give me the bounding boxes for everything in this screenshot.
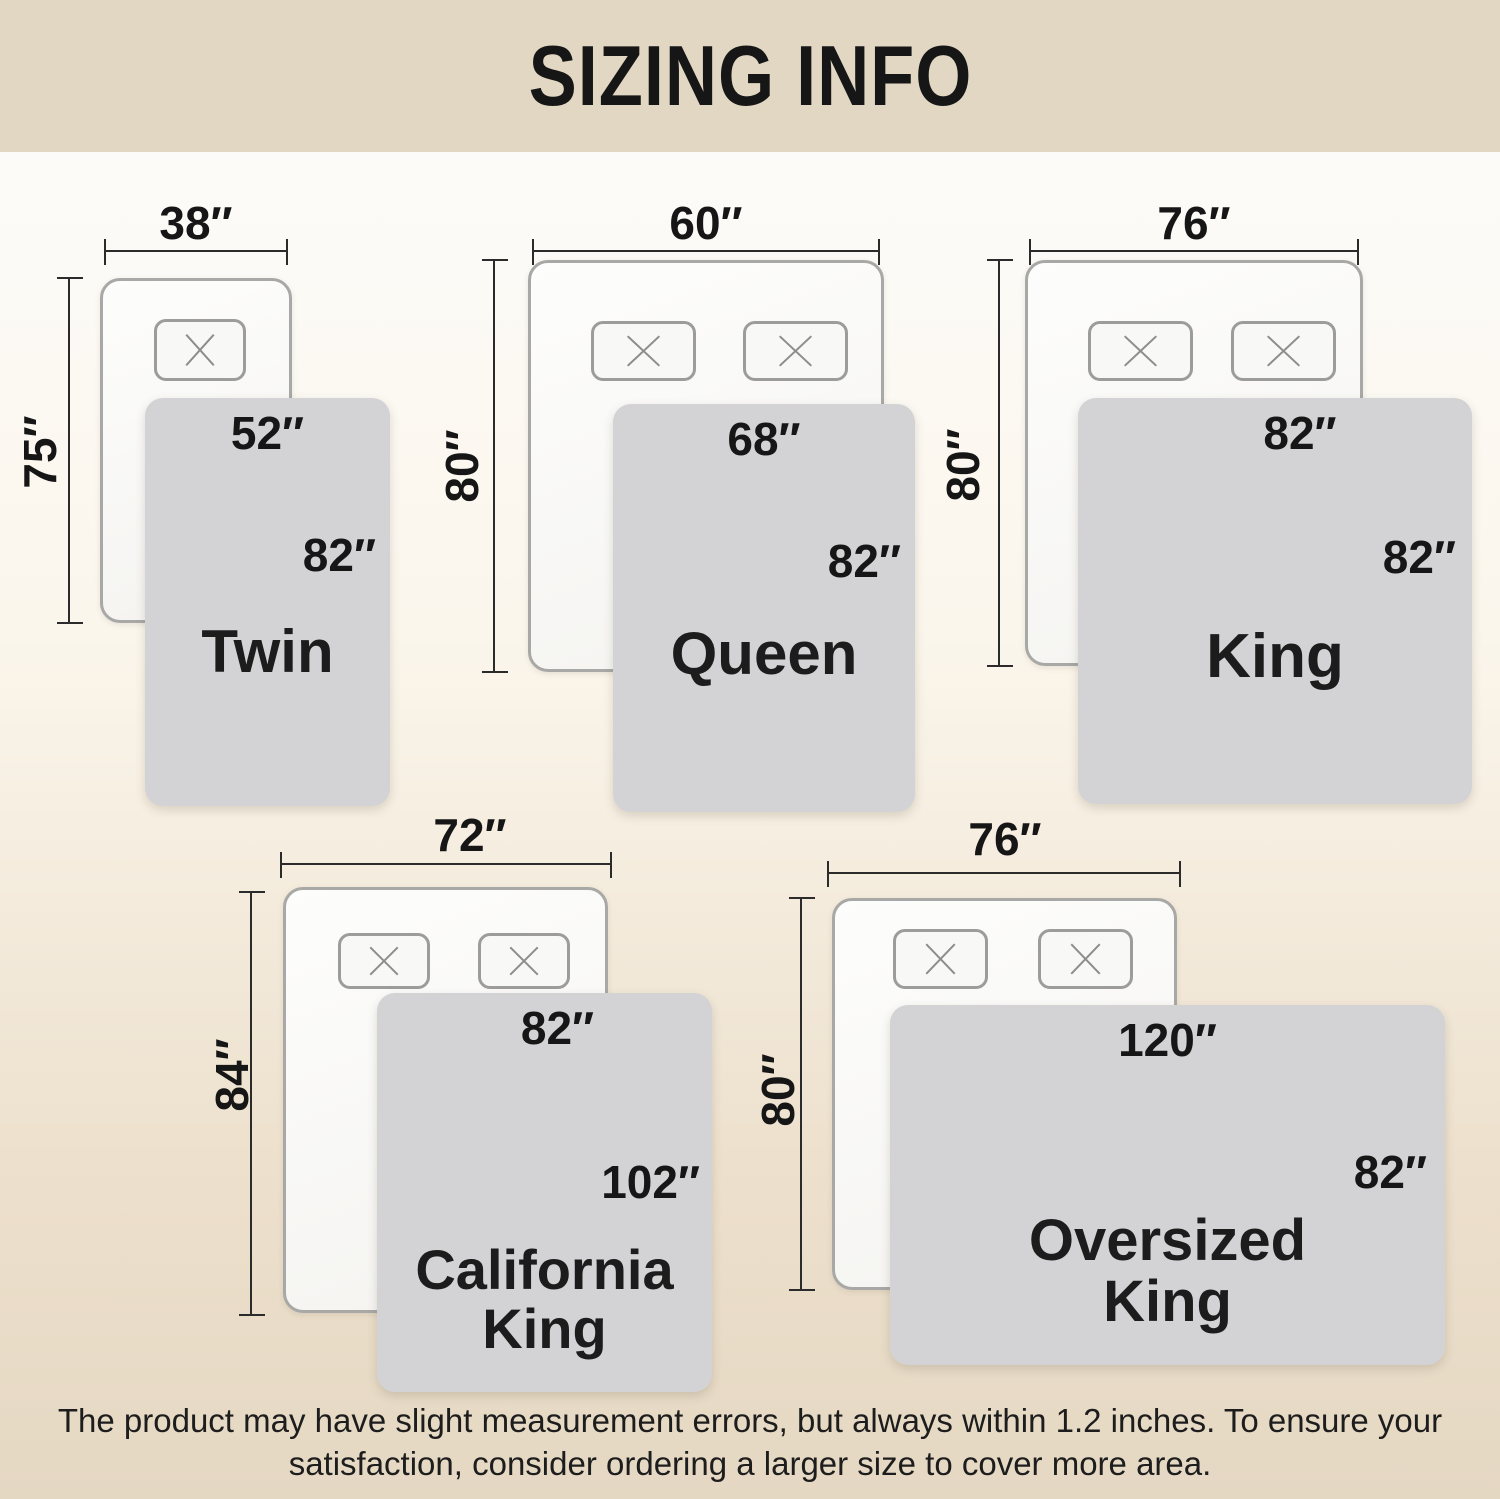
pillow-x-icon bbox=[481, 936, 567, 986]
pillow-x-icon bbox=[746, 324, 845, 378]
mattress-width-label: 72″ bbox=[410, 808, 530, 862]
mattress-width-label: 76″ bbox=[945, 812, 1065, 866]
length-dimension-line bbox=[68, 278, 70, 623]
mattress-width-label: 76″ bbox=[1134, 196, 1254, 250]
length-dimension-line bbox=[250, 892, 252, 1315]
blanket: 82″ 102″ California King bbox=[377, 993, 712, 1392]
mattress-width-label: 38″ bbox=[136, 196, 256, 250]
blanket: 82″ 82″ King bbox=[1078, 398, 1472, 804]
pillow-x-icon bbox=[157, 322, 243, 378]
blanket-width-label: 52″ bbox=[145, 406, 390, 460]
width-dimension-line bbox=[533, 250, 879, 252]
width-dimension-line bbox=[281, 863, 611, 865]
blanket-length-label: 82″ bbox=[828, 534, 901, 588]
sizing-info-page: SIZING INFO 38″ 75″ 52″ 82″ Twin 60″ 80″ bbox=[0, 0, 1500, 1499]
diagram-california-king: 72″ 84″ 82″ 102″ California King bbox=[200, 800, 760, 1444]
size-name-label: Oversized King bbox=[890, 1211, 1445, 1333]
pillow bbox=[338, 933, 430, 989]
page-title: SIZING INFO bbox=[528, 27, 972, 124]
pillow bbox=[1088, 321, 1193, 381]
pillow bbox=[893, 929, 988, 989]
pillow bbox=[1231, 321, 1336, 381]
blanket: 120″ 82″ Oversized King bbox=[890, 1005, 1445, 1365]
blanket-length-label: 82″ bbox=[1354, 1145, 1427, 1199]
blanket-width-label: 68″ bbox=[613, 412, 915, 466]
blanket-width-label: 82″ bbox=[377, 1001, 712, 1055]
blanket-length-label: 82″ bbox=[1383, 530, 1456, 584]
width-dimension-line bbox=[1030, 250, 1358, 252]
diagram-twin: 38″ 75″ 52″ 82″ Twin bbox=[20, 196, 420, 826]
blanket-width-label: 120″ bbox=[890, 1013, 1445, 1067]
pillow-x-icon bbox=[896, 932, 985, 986]
pillow-x-icon bbox=[1041, 932, 1130, 986]
footer-note: The product may have slight measurement … bbox=[50, 1400, 1450, 1486]
width-dimension-line bbox=[105, 250, 287, 252]
diagram-queen: 60″ 80″ 68″ 82″ Queen bbox=[430, 196, 940, 826]
size-name-label: Twin bbox=[145, 620, 390, 683]
diagram-king: 76″ 80″ 82″ 82″ King bbox=[940, 196, 1500, 826]
size-name-label: Queen bbox=[613, 622, 915, 685]
size-name-label: California King bbox=[377, 1241, 712, 1359]
pillow-x-icon bbox=[1234, 324, 1333, 378]
pillow-x-icon bbox=[1091, 324, 1190, 378]
pillow-x-icon bbox=[594, 324, 693, 378]
mattress-length-label: 84″ bbox=[210, 1030, 254, 1120]
length-dimension-line bbox=[998, 260, 1000, 666]
blanket-width-label: 82″ bbox=[1078, 406, 1472, 460]
mattress-length-label: 80″ bbox=[440, 421, 484, 511]
width-dimension-line bbox=[828, 872, 1180, 874]
pillow bbox=[591, 321, 696, 381]
length-dimension-line bbox=[493, 260, 495, 672]
blanket: 68″ 82″ Queen bbox=[613, 404, 915, 812]
pillow-x-icon bbox=[341, 936, 427, 986]
blanket-length-label: 102″ bbox=[601, 1155, 700, 1209]
size-name-label: King bbox=[1078, 624, 1472, 689]
footer-note-text: The product may have slight measurement … bbox=[55, 1400, 1445, 1486]
pillow bbox=[1038, 929, 1133, 989]
blanket: 52″ 82″ Twin bbox=[145, 398, 390, 806]
pillow bbox=[478, 933, 570, 989]
mattress-length-label: 80″ bbox=[941, 420, 985, 510]
pillow bbox=[154, 319, 246, 381]
length-dimension-line bbox=[800, 898, 802, 1290]
mattress-width-label: 60″ bbox=[646, 196, 766, 250]
pillow bbox=[743, 321, 848, 381]
diagram-oversized-king: 76″ 80″ 120″ 82″ Oversized King bbox=[760, 800, 1500, 1444]
mattress-length-label: 75″ bbox=[18, 407, 62, 497]
blanket-length-label: 82″ bbox=[303, 528, 376, 582]
mattress-length-label: 80″ bbox=[756, 1045, 800, 1135]
header-band: SIZING INFO bbox=[0, 0, 1500, 152]
